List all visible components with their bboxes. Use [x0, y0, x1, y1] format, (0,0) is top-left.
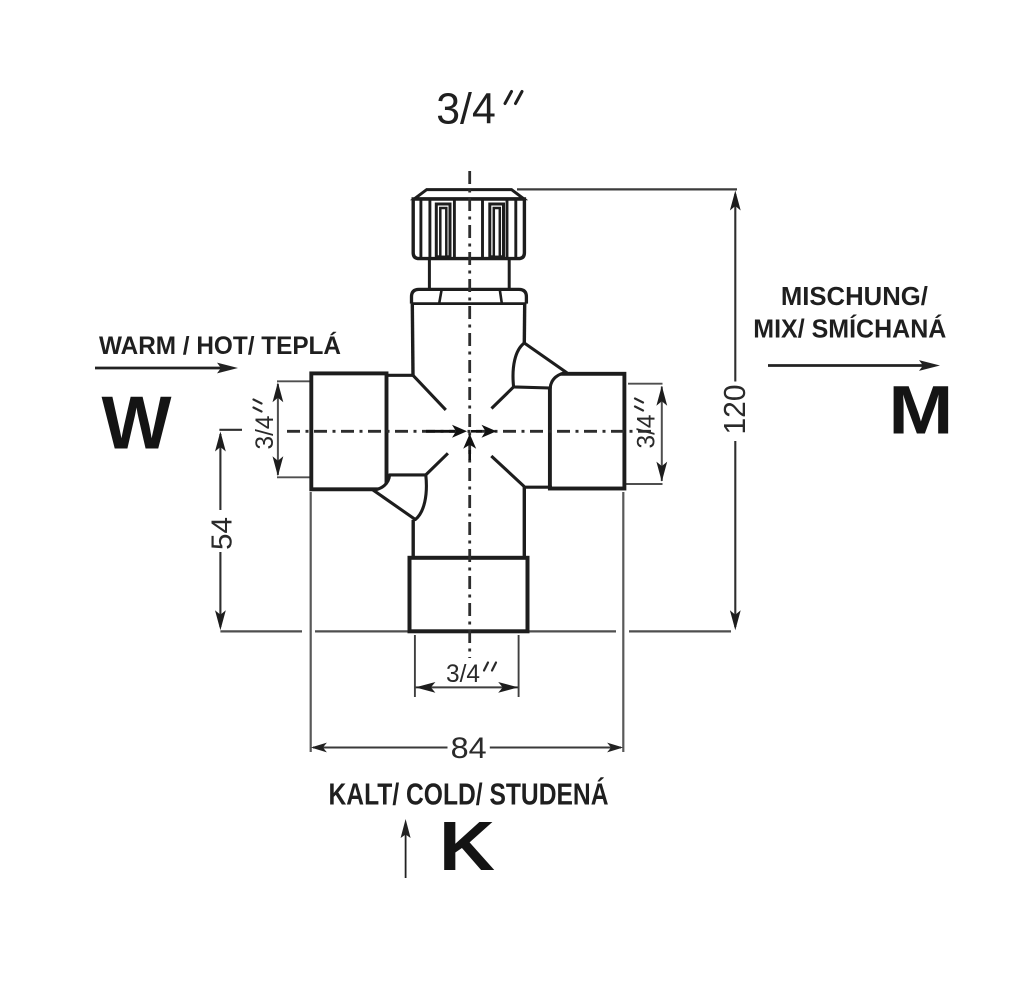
svg-text:3/4: 3/4 — [446, 660, 480, 688]
svg-text:WARM / HOT/ TEPLÁ: WARM / HOT/ TEPLÁ — [99, 331, 341, 360]
svg-text:MIX/ SMÍCHANÁ: MIX/ SMÍCHANÁ — [753, 313, 946, 343]
svg-text:MISCHUNG/: MISCHUNG/ — [781, 281, 928, 311]
svg-text:54: 54 — [207, 517, 239, 550]
svg-text:W: W — [102, 380, 172, 464]
svg-text:3/4: 3/4 — [436, 85, 496, 134]
svg-text:M: M — [888, 372, 953, 449]
svg-text:84: 84 — [451, 732, 487, 765]
svg-text:120: 120 — [717, 385, 752, 435]
svg-text:3/4: 3/4 — [251, 415, 279, 449]
svg-text:K: K — [439, 807, 495, 885]
